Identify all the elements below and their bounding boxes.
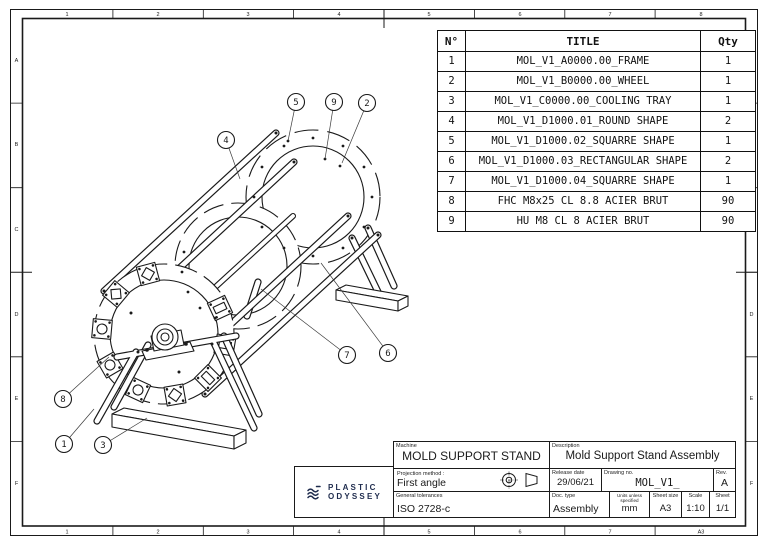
grid-label: A3 xyxy=(698,530,705,536)
release-date-value: 29/06/21 xyxy=(550,477,601,491)
bom-cell-no: 8 xyxy=(438,192,466,212)
rev-label: Rev. xyxy=(714,469,735,477)
logo-line2: ODYSSEY xyxy=(328,492,382,501)
rev-cell: Rev. A xyxy=(713,469,735,491)
grid-label: 1 xyxy=(65,12,68,18)
bom-cell-qty: 90 xyxy=(701,192,756,212)
balloon-number: 9 xyxy=(331,98,336,108)
bom-cell-title: MOL_V1_B0000.00_WHEEL xyxy=(466,72,701,92)
bom-header-title: TITLE xyxy=(466,31,701,52)
grid-label: 1 xyxy=(65,530,68,536)
bom-row: 5MOL_V1_D1000.02_SQUARRE SHAPE1 xyxy=(438,132,756,152)
bom-header-no: N° xyxy=(438,31,466,52)
grid-label: F xyxy=(15,481,19,487)
title-block-row1: Machine MOLD SUPPORT STAND Description M… xyxy=(394,442,735,468)
balloon-number: 2 xyxy=(364,99,369,109)
bom-header-qty: Qty xyxy=(701,31,756,52)
balloon-callout: 6 xyxy=(321,263,397,362)
projection-cell: Projection method : First angle xyxy=(394,469,549,491)
grid-label: 2 xyxy=(156,12,159,18)
bom-cell-no: 2 xyxy=(438,72,466,92)
sheet-size-value: A3 xyxy=(650,503,681,517)
logo-line1: PLASTIC xyxy=(328,483,382,492)
balloon-callout: 1 xyxy=(56,409,95,453)
bom-cell-no: 7 xyxy=(438,172,466,192)
drawing-no-cell: Drawing no. MOL_V1_ xyxy=(601,469,713,491)
bom-cell-qty: 1 xyxy=(701,172,756,192)
release-date-label: Release date xyxy=(550,469,601,477)
bom-row: 2MOL_V1_B0000.00_WHEEL1 xyxy=(438,72,756,92)
bom-cell-no: 4 xyxy=(438,112,466,132)
bom-row: 9HU M8 CL 8 ACIER BRUT90 xyxy=(438,212,756,232)
balloon-number: 6 xyxy=(385,349,390,359)
bom-cell-no: 3 xyxy=(438,92,466,112)
doc-type-cell: Doc. type Assembly xyxy=(549,492,609,517)
bom-cell-qty: 1 xyxy=(701,72,756,92)
grid-label: C xyxy=(15,227,19,233)
bom-header-row: N° TITLE Qty xyxy=(438,31,756,52)
bom-row: 8FHC M8x25 CL 8.8 ACIER BRUT90 xyxy=(438,192,756,212)
bom-table: N° TITLE Qty 1MOL_V1_A0000.00_FRAME12MOL… xyxy=(437,30,756,232)
bom-body: 1MOL_V1_A0000.00_FRAME12MOL_V1_B0000.00_… xyxy=(438,52,756,232)
bom-cell-qty: 1 xyxy=(701,52,756,72)
bom-cell-title: FHC M8x25 CL 8.8 ACIER BRUT xyxy=(466,192,701,212)
bom-row: 4MOL_V1_D1000.01_ROUND SHAPE2 xyxy=(438,112,756,132)
scale-label: Scale xyxy=(682,492,709,500)
bom-cell-qty: 90 xyxy=(701,212,756,232)
units-label: Units unless specified xyxy=(610,492,649,503)
sheet-label: Sheet xyxy=(710,492,735,500)
grid-label: 7 xyxy=(608,12,611,18)
balloon-number: 8 xyxy=(60,395,65,405)
projection-value: First angle xyxy=(397,477,446,489)
tolerances-cell: General tolerances ISO 2728-c xyxy=(394,492,549,517)
description-label: Description xyxy=(550,442,735,450)
grid-label: D xyxy=(750,312,754,318)
grid-label: 4 xyxy=(337,12,340,18)
bom-cell-title: MOL_V1_A0000.00_FRAME xyxy=(466,52,701,72)
grid-label: E xyxy=(15,396,19,402)
grid-label: A xyxy=(15,58,19,64)
grid-label: F xyxy=(750,481,754,487)
front-base xyxy=(112,408,246,449)
title-block-row2: Projection method : First angle xyxy=(394,468,735,491)
bom-cell-no: 9 xyxy=(438,212,466,232)
title-block-row3: General tolerances ISO 2728-c Doc. type … xyxy=(394,491,735,517)
projection-label: Projection method : xyxy=(397,470,446,478)
grid-label: E xyxy=(750,396,754,402)
machine-isometric-view: 123456789 xyxy=(55,94,409,454)
grid-label: 5 xyxy=(427,530,430,536)
doc-type-label: Doc. type xyxy=(550,492,609,500)
scale-cell: Scale 1:10 xyxy=(681,492,709,517)
grid-label: 7 xyxy=(608,530,611,536)
balloon-number: 5 xyxy=(293,98,298,108)
bom-cell-no: 1 xyxy=(438,52,466,72)
bom-cell-qty: 1 xyxy=(701,92,756,112)
bom-cell-title: MOL_V1_C0000.00_COOLING TRAY xyxy=(466,92,701,112)
grid-label: 6 xyxy=(518,12,521,18)
bom-row: 3MOL_V1_C0000.00_COOLING TRAY1 xyxy=(438,92,756,112)
units-cell: Units unless specified mm xyxy=(609,492,649,517)
grid-band-bottom: 1234567A3 xyxy=(65,530,704,536)
bom-cell-qty: 1 xyxy=(701,132,756,152)
balloon-callout: 8 xyxy=(55,357,110,408)
sheet-size-cell: Sheet size A3 xyxy=(649,492,681,517)
machine-value: MOLD SUPPORT STAND xyxy=(394,450,549,464)
release-date-cell: Release date 29/06/21 xyxy=(549,469,601,491)
grid-label: 8 xyxy=(699,12,702,18)
grid-label: 3 xyxy=(246,530,249,536)
balloon-number: 3 xyxy=(100,441,105,451)
grid-label: 6 xyxy=(518,530,521,536)
drawing-no-value: MOL_V1_ xyxy=(602,477,713,491)
sheet-value: 1/1 xyxy=(710,503,735,517)
description-cell: Description Mold Support Stand Assembly xyxy=(549,442,735,468)
bom-cell-qty: 2 xyxy=(701,152,756,172)
bom-cell-title: MOL_V1_D1000.02_SQUARRE SHAPE xyxy=(466,132,701,152)
bom-cell-title: HU M8 CL 8 ACIER BRUT xyxy=(466,212,701,232)
bom-cell-qty: 2 xyxy=(701,112,756,132)
first-angle-projection-icon xyxy=(497,471,543,489)
machine-cell: Machine MOLD SUPPORT STAND xyxy=(394,442,549,468)
tolerances-label: General tolerances xyxy=(394,492,549,500)
logo-box: PLASTIC ODYSSEY xyxy=(294,466,394,518)
bom-cell-no: 6 xyxy=(438,152,466,172)
sheet-size-label: Sheet size xyxy=(650,492,681,500)
balloon-number: 4 xyxy=(223,136,228,146)
bom-cell-title: MOL_V1_D1000.04_SQUARRE SHAPE xyxy=(466,172,701,192)
sheet-cell: Sheet 1/1 xyxy=(709,492,735,517)
grid-label: 5 xyxy=(427,12,430,18)
tolerances-value: ISO 2728-c xyxy=(394,503,549,517)
grid-label: 3 xyxy=(246,12,249,18)
doc-type-value: Assembly xyxy=(550,503,609,517)
title-block: Machine MOLD SUPPORT STAND Description M… xyxy=(393,441,736,518)
balloon-number: 7 xyxy=(344,351,349,361)
bom-cell-title: MOL_V1_D1000.01_ROUND SHAPE xyxy=(466,112,701,132)
units-value: mm xyxy=(610,503,649,517)
bom-row: 7MOL_V1_D1000.04_SQUARRE SHAPE1 xyxy=(438,172,756,192)
grid-label: 2 xyxy=(156,530,159,536)
grid-label: B xyxy=(15,142,19,148)
bom-cell-title: MOL_V1_D1000.03_RECTANGULAR SHAPE xyxy=(466,152,701,172)
bom-row: 6MOL_V1_D1000.03_RECTANGULAR SHAPE2 xyxy=(438,152,756,172)
bom-row: 1MOL_V1_A0000.00_FRAME1 xyxy=(438,52,756,72)
grid-label: 4 xyxy=(337,530,340,536)
logo-wordmark: PLASTIC ODYSSEY xyxy=(328,483,382,501)
grid-label: D xyxy=(15,312,19,318)
waves-icon xyxy=(306,484,323,501)
bom-cell-no: 5 xyxy=(438,132,466,152)
description-value: Mold Support Stand Assembly xyxy=(550,450,735,464)
scale-value: 1:10 xyxy=(682,503,709,517)
drawing-no-label: Drawing no. xyxy=(602,469,713,477)
rev-value: A xyxy=(714,477,735,491)
balloon-number: 1 xyxy=(61,440,66,450)
drawing-sheet: 12345678 1234567A3 ABCDEF ABCDEF xyxy=(0,0,768,544)
